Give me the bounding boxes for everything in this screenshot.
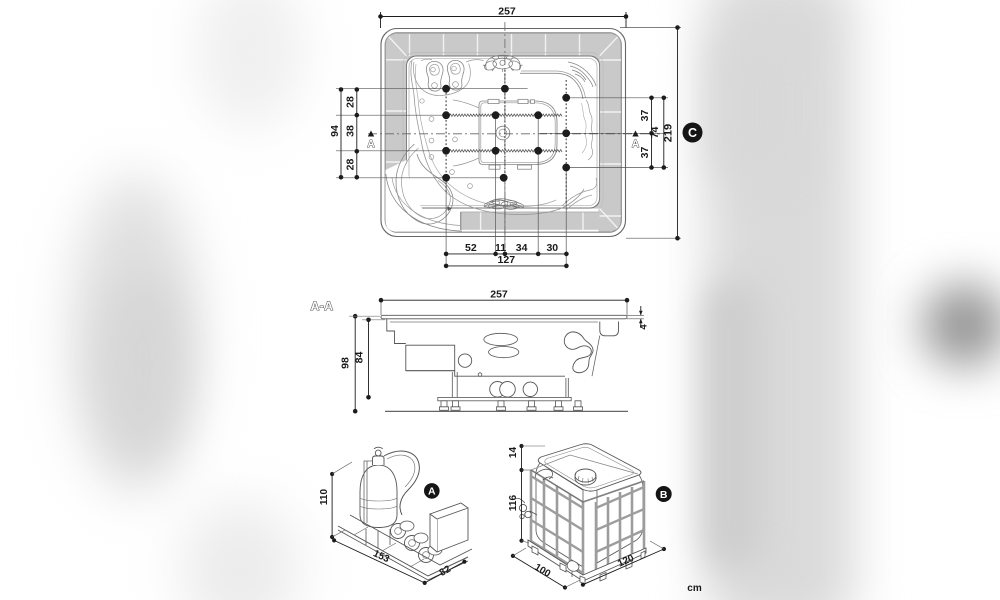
svg-text:28: 28 — [345, 159, 357, 171]
svg-text:82: 82 — [438, 564, 454, 579]
svg-text:116: 116 — [508, 494, 519, 511]
svg-text:11: 11 — [495, 242, 506, 254]
svg-text:153: 153 — [371, 548, 391, 565]
svg-text:B: B — [660, 489, 668, 501]
svg-text:A: A — [428, 486, 436, 498]
svg-text:110: 110 — [319, 488, 330, 505]
svg-text:28: 28 — [345, 96, 357, 108]
svg-text:84: 84 — [354, 352, 366, 364]
svg-text:37: 37 — [639, 147, 651, 159]
svg-text:100: 100 — [532, 562, 552, 580]
svg-text:34: 34 — [516, 242, 528, 254]
svg-text:A-A: A-A — [311, 299, 334, 313]
svg-text:30: 30 — [546, 242, 558, 254]
svg-text:14: 14 — [508, 447, 519, 459]
svg-text:257: 257 — [490, 289, 508, 301]
svg-text:127: 127 — [498, 254, 516, 266]
svg-text:98: 98 — [340, 357, 352, 369]
svg-text:cm: cm — [687, 583, 702, 594]
svg-text:38: 38 — [345, 125, 357, 137]
svg-text:37: 37 — [639, 110, 651, 122]
svg-text:C: C — [688, 126, 697, 140]
svg-text:219: 219 — [663, 124, 675, 142]
svg-text:74: 74 — [649, 127, 661, 139]
svg-text:52: 52 — [465, 242, 477, 254]
svg-text:94: 94 — [329, 125, 341, 137]
svg-text:257: 257 — [498, 6, 516, 18]
svg-text:A: A — [367, 139, 374, 150]
svg-text:4: 4 — [639, 324, 650, 330]
